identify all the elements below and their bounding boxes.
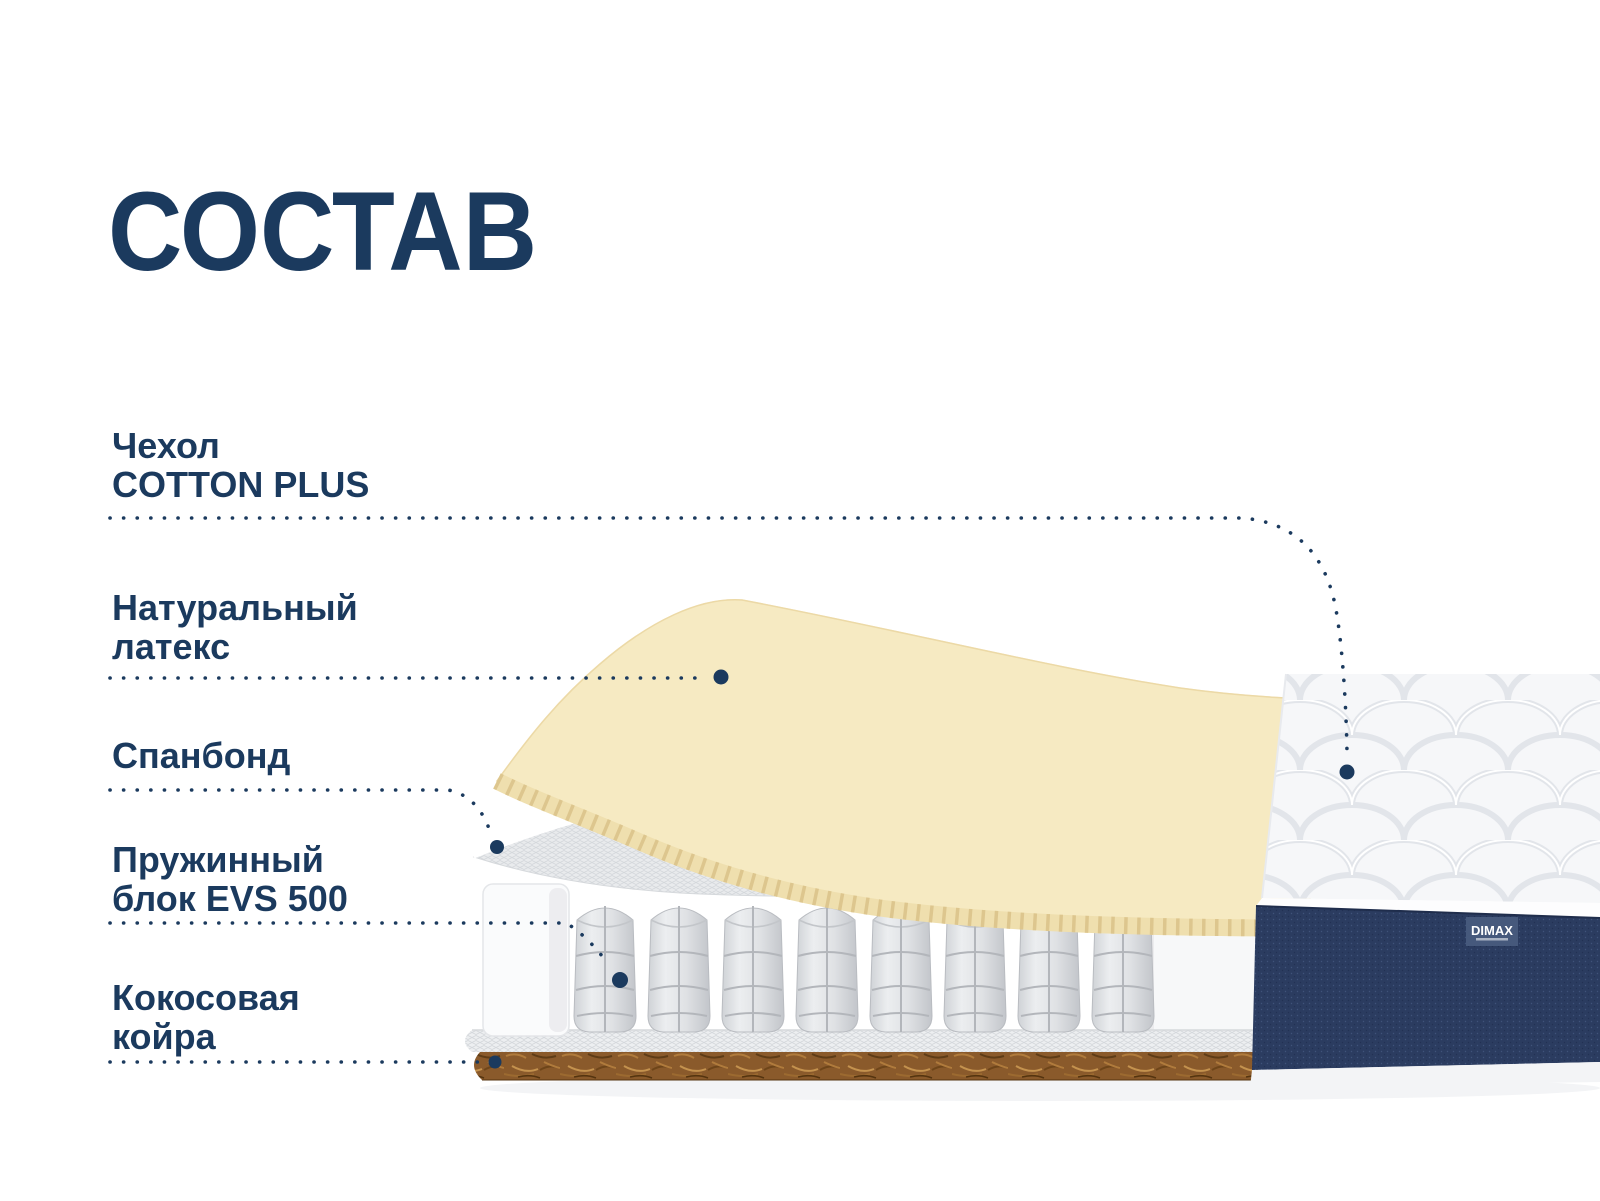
leader-spunbond: [110, 790, 492, 836]
label-cover-line2: COTTON PLUS: [112, 465, 369, 504]
label-springs-line2: блок EVS 500: [112, 879, 348, 918]
covered-right-section: DIMAX: [1250, 674, 1600, 1088]
page-title: СОСТАВ: [108, 176, 537, 288]
label-latex-line2: латекс: [112, 627, 358, 666]
label-coir-line2: койра: [112, 1017, 300, 1056]
label-coir: Кокосовая койра: [112, 978, 300, 1056]
base-sheet: [465, 1030, 1256, 1052]
label-cover-line1: Чехол: [112, 426, 369, 465]
label-cover: Чехол COTTON PLUS: [112, 426, 369, 504]
foam-side-block: [483, 884, 569, 1036]
dot-spunbond: [490, 840, 504, 854]
dot-cover: [1340, 765, 1355, 780]
label-spunbond-line1: Спанбонд: [112, 736, 290, 775]
mattress-composition-infographic: DIMAX СОСТАВ Чехол COTTON PLUS Натур: [0, 0, 1600, 1201]
navy-side-panel: DIMAX: [1252, 906, 1600, 1070]
brand-label: DIMAX: [1471, 923, 1513, 938]
label-latex-line1: Натуральный: [112, 588, 358, 627]
label-spunbond: Спанбонд: [112, 736, 290, 775]
dot-latex: [714, 670, 729, 685]
dot-springs: [612, 972, 628, 988]
label-latex: Натуральный латекс: [112, 588, 358, 666]
label-coir-line1: Кокосовая: [112, 978, 300, 1017]
brand-tag: DIMAX: [1466, 917, 1518, 946]
coir-layer: [474, 1050, 1258, 1080]
quilted-cover: [1262, 674, 1600, 903]
dot-coir: [489, 1056, 502, 1069]
label-springs-line1: Пружинный: [112, 840, 348, 879]
label-springs: Пружинный блок EVS 500: [112, 840, 348, 918]
